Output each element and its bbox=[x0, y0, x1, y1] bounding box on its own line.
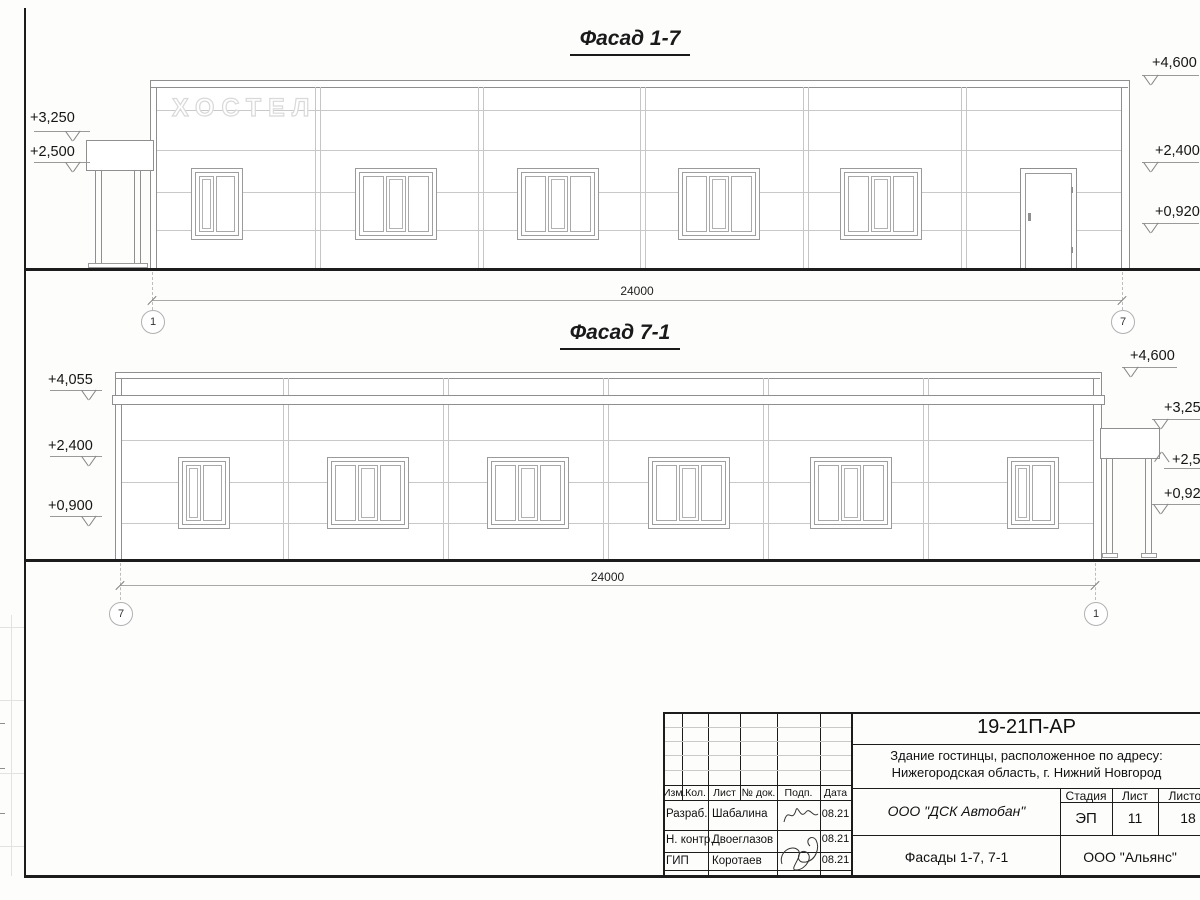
sheets-total: 18 bbox=[1158, 810, 1200, 826]
stage-label: Стадия bbox=[1060, 789, 1112, 803]
window bbox=[648, 457, 730, 529]
panel-joint bbox=[443, 378, 449, 560]
canopy-slab bbox=[1100, 428, 1160, 459]
window bbox=[1007, 457, 1059, 529]
elevation-arrow-icon bbox=[1144, 162, 1157, 172]
panel-joint bbox=[603, 378, 609, 560]
ground-line bbox=[24, 559, 1200, 562]
elevation-mark: +0,920 bbox=[1164, 486, 1200, 502]
canopy-post bbox=[95, 170, 102, 264]
clipped-drawing-tick bbox=[0, 768, 5, 769]
panel-joint bbox=[961, 87, 967, 268]
elevation-mark: +2,500 bbox=[1172, 452, 1200, 468]
date-ncontrol: 08.21 bbox=[820, 833, 851, 845]
elevation-mark: +4,600 bbox=[1152, 55, 1197, 71]
clipped-drawing-line bbox=[0, 627, 24, 628]
elevation-arrow-icon bbox=[66, 162, 79, 172]
dimension-line bbox=[120, 585, 1095, 586]
clipped-drawing-line bbox=[0, 773, 24, 774]
role-developer: Разраб. bbox=[666, 808, 707, 820]
elevation-mark: +3,250 bbox=[1164, 400, 1200, 416]
elevation-mark: +2,500 bbox=[30, 144, 75, 160]
drawing-title: Фасады 1-7, 7-1 bbox=[853, 849, 1060, 865]
dimension-value: 24000 bbox=[120, 570, 1095, 584]
firm-name: ООО "Альянс" bbox=[1060, 849, 1200, 865]
panel-line bbox=[122, 482, 1093, 483]
panel-joint bbox=[283, 378, 289, 560]
date-gip: 08.21 bbox=[820, 854, 851, 866]
titleblock-line bbox=[665, 755, 851, 756]
name-gip: Коротаев bbox=[712, 855, 762, 867]
elevation-mark: +4,600 bbox=[1130, 348, 1175, 364]
window bbox=[191, 168, 243, 240]
door-leaf bbox=[1025, 173, 1072, 269]
clipped-drawing-tick bbox=[0, 723, 5, 724]
elevation-shelf bbox=[34, 131, 90, 132]
window bbox=[178, 457, 230, 529]
panel-line bbox=[157, 192, 1121, 193]
facade-1-7-title: Фасад 1-7 bbox=[520, 27, 740, 56]
panel-joint bbox=[640, 87, 646, 268]
clipped-drawing-line bbox=[0, 700, 24, 701]
panel-joint bbox=[763, 378, 769, 560]
elevation-arrow-icon bbox=[1144, 75, 1157, 85]
canopy-slab bbox=[86, 140, 154, 171]
panel-joint bbox=[478, 87, 484, 268]
extension-line bbox=[1122, 272, 1123, 310]
sheet-number: 11 bbox=[1112, 810, 1158, 826]
col-kol: Кол. bbox=[682, 787, 709, 799]
col-podp: Подп. bbox=[777, 787, 820, 799]
sheet-frame-left bbox=[24, 8, 26, 877]
window bbox=[355, 168, 437, 240]
col-data: Дата bbox=[820, 787, 851, 799]
titleblock-line bbox=[665, 785, 851, 786]
titleblock-line bbox=[853, 744, 1200, 745]
elevation-arrow-icon bbox=[1124, 367, 1137, 377]
elevation-arrow-icon bbox=[82, 456, 95, 466]
elevation-shelf bbox=[34, 162, 90, 163]
name-ncontrol: Двоеглазов bbox=[712, 834, 773, 846]
post-base bbox=[1102, 553, 1118, 558]
window bbox=[810, 457, 892, 529]
name-developer: Шабалина bbox=[712, 808, 768, 820]
titleblock-border bbox=[663, 712, 1200, 714]
elevation-mark: +0,900 bbox=[48, 498, 93, 514]
entrance-door bbox=[1020, 168, 1077, 270]
panel-line bbox=[157, 150, 1121, 151]
dimension-value: 24000 bbox=[152, 284, 1122, 298]
clipped-drawing-tick bbox=[0, 813, 5, 814]
post-base bbox=[1141, 553, 1157, 558]
elevation-mark: +2,400 bbox=[1155, 143, 1200, 159]
window bbox=[517, 168, 599, 240]
door-hinge bbox=[1071, 247, 1073, 253]
sheet-frame-bottom bbox=[24, 875, 1200, 878]
panel-line bbox=[122, 523, 1093, 524]
clipped-drawing-line bbox=[0, 846, 24, 847]
axis-bubble: 7 bbox=[1111, 310, 1135, 334]
clipped-drawing-line bbox=[11, 615, 12, 876]
object-address-line2: Нижегородская область, г. Нижний Новгоро… bbox=[853, 765, 1200, 780]
elevation-arrow-icon bbox=[1144, 223, 1157, 233]
window bbox=[327, 457, 409, 529]
col-list: Лист bbox=[709, 787, 740, 799]
role-gip: ГИП bbox=[666, 855, 689, 867]
elevation-mark: +0,920 bbox=[1155, 204, 1200, 220]
titleblock-line bbox=[665, 727, 851, 728]
panel-line bbox=[157, 230, 1121, 231]
titleblock-line bbox=[665, 800, 851, 801]
door-handle bbox=[1028, 213, 1031, 221]
stage-value: ЭП bbox=[1060, 810, 1112, 827]
corner-line bbox=[121, 378, 122, 560]
object-address-line1: Здание гостинцы, расположенное по адресу… bbox=[853, 748, 1200, 763]
sheet-label: Лист bbox=[1112, 789, 1158, 803]
elevation-mark: +4,055 bbox=[48, 372, 93, 388]
hostel-sign: ХОСТЕЛ bbox=[172, 94, 316, 123]
col-izm: Изм. bbox=[663, 787, 683, 799]
door-hinge bbox=[1071, 187, 1073, 193]
dimension-line bbox=[152, 300, 1122, 301]
elevation-arrow-icon bbox=[1154, 504, 1167, 514]
ground-line bbox=[24, 268, 1200, 271]
canopy-post bbox=[134, 170, 141, 264]
elevation-mark: +2,400 bbox=[48, 438, 93, 454]
sheets-label: Листов bbox=[1158, 789, 1200, 803]
titleblock-line bbox=[665, 741, 851, 742]
doc-code: 19-21П-АР bbox=[853, 716, 1200, 739]
date-developer: 08.21 bbox=[820, 808, 851, 820]
elevation-mark: +3,250 bbox=[30, 110, 75, 126]
axis-bubble: 1 bbox=[141, 310, 165, 334]
axis-bubble: 7 bbox=[109, 602, 133, 626]
contractor-name: ООО "ДСК Автобан" bbox=[853, 803, 1060, 819]
panel-line bbox=[122, 440, 1093, 441]
col-doc: № док. bbox=[740, 787, 777, 799]
canopy-post bbox=[1106, 458, 1113, 554]
elevation-arrow-icon bbox=[82, 516, 95, 526]
role-ncontrol: Н. контр. bbox=[666, 834, 713, 846]
window bbox=[487, 457, 569, 529]
corner-line bbox=[1093, 378, 1094, 560]
canopy-post bbox=[1145, 458, 1152, 554]
signature bbox=[780, 802, 820, 828]
axis-bubble: 1 bbox=[1084, 602, 1108, 626]
cornice-band bbox=[112, 395, 1105, 405]
drawing-sheet: Фасад 1-7 ХОСТЕЛ +3,250 bbox=[0, 0, 1200, 900]
parapet-line bbox=[150, 87, 1128, 88]
elevation-arrow-icon bbox=[82, 390, 95, 400]
panel-joint bbox=[803, 87, 809, 268]
elevation-shelf bbox=[1164, 468, 1200, 469]
panel-joint bbox=[923, 378, 929, 560]
signature bbox=[776, 830, 824, 874]
titleblock-line bbox=[853, 835, 1200, 836]
titleblock-line bbox=[665, 770, 851, 771]
elevation-arrow-icon bbox=[1154, 419, 1167, 429]
window bbox=[840, 168, 922, 240]
corner-line bbox=[156, 87, 157, 268]
facade-7-1-title: Фасад 7-1 bbox=[510, 321, 730, 350]
extension-line bbox=[1095, 563, 1096, 600]
window bbox=[678, 168, 760, 240]
elevation-arrow-icon bbox=[66, 131, 79, 141]
corner-line bbox=[1121, 87, 1122, 268]
elevation-arrow-icon bbox=[1155, 452, 1168, 462]
